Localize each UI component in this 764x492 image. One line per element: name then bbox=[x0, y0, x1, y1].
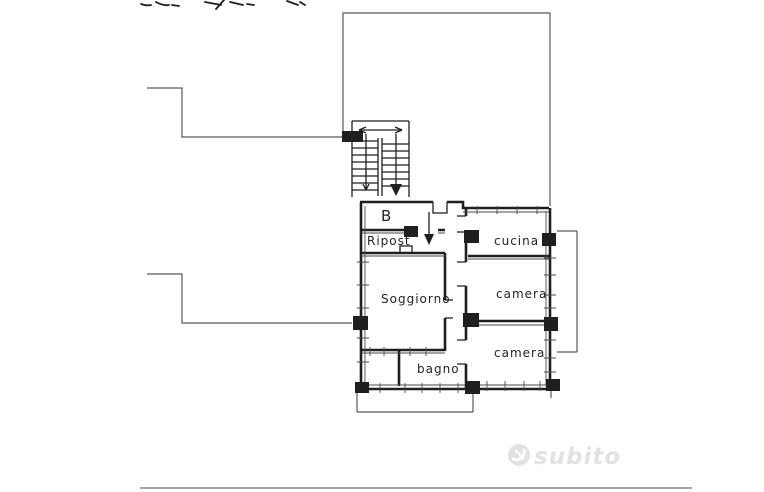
site-outline bbox=[147, 13, 550, 323]
room-label-entrance: B bbox=[381, 207, 391, 225]
footer-divider-line bbox=[140, 487, 692, 489]
floorplan-page: B Ripost Soggiorno cucina camera camera … bbox=[0, 0, 764, 492]
room-label-soggiorno: Soggiorno bbox=[381, 292, 451, 306]
handwritten-note bbox=[141, 0, 305, 9]
watermark-brand-text: subito bbox=[534, 444, 621, 470]
room-label-bagno: bagno bbox=[417, 362, 460, 376]
room-label-ripostiglio: Ripost bbox=[367, 234, 411, 248]
entrance-arrow bbox=[424, 212, 434, 245]
room-label-camera-2: camera bbox=[494, 346, 545, 360]
room-label-cucina: cucina bbox=[494, 234, 539, 248]
stair-direction-arrows bbox=[359, 127, 402, 196]
floor-plan-drawing: B Ripost Soggiorno cucina camera camera … bbox=[0, 0, 764, 492]
watermark: subito bbox=[508, 444, 621, 470]
room-label-camera-1: camera bbox=[496, 287, 547, 301]
